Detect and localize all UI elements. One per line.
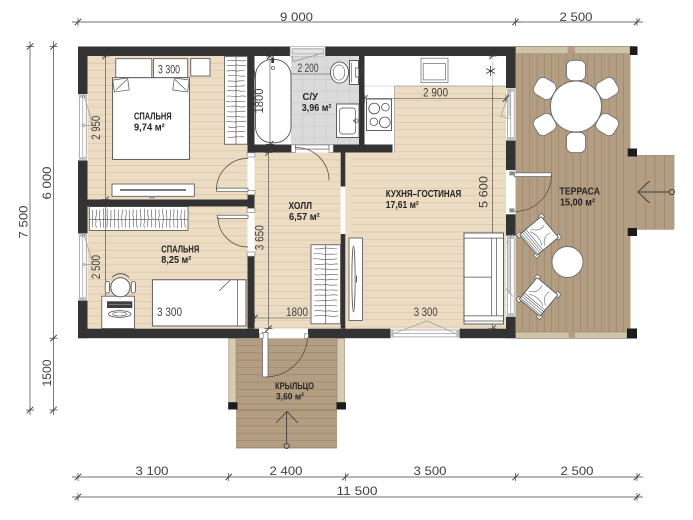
svg-text:6 000: 6 000 [40,166,54,199]
svg-text:2 400: 2 400 [270,464,303,478]
svg-text:9 000: 9 000 [280,10,313,24]
svg-text:СПАЛЬНЯ: СПАЛЬНЯ [134,112,172,123]
svg-text:5 600: 5 600 [479,176,491,208]
svg-text:КУХНЯ–ГОСТИНАЯ: КУХНЯ–ГОСТИНАЯ [386,189,461,200]
svg-text:11 500: 11 500 [337,484,378,498]
svg-text:3 500: 3 500 [414,464,447,478]
svg-text:8,25 м²: 8,25 м² [161,255,191,266]
svg-text:ТЕРРАСА: ТЕРРАСА [560,187,601,198]
svg-text:9,74 м²: 9,74 м² [134,122,165,133]
svg-text:2 200: 2 200 [298,63,319,75]
svg-text:3 300: 3 300 [414,307,438,319]
svg-text:3,60 м²: 3,60 м² [276,391,304,402]
svg-text:3 300: 3 300 [157,307,182,319]
svg-text:2 500: 2 500 [91,255,103,279]
svg-text:7 500: 7 500 [17,205,31,238]
svg-text:2 950: 2 950 [91,116,103,140]
svg-text:2 500: 2 500 [560,10,593,24]
svg-text:ХОЛЛ: ХОЛЛ [289,201,313,212]
svg-text:2 900: 2 900 [423,88,448,100]
svg-text:СПАЛЬНЯ: СПАЛЬНЯ [161,245,199,256]
svg-text:3 300: 3 300 [158,65,180,77]
svg-text:1500: 1500 [40,359,54,386]
svg-text:3 100: 3 100 [136,464,169,478]
svg-text:3,96 м²: 3,96 м² [302,103,332,114]
svg-text:6,57 м²: 6,57 м² [289,212,320,223]
svg-text:2 500: 2 500 [561,464,594,478]
svg-text:1800: 1800 [254,89,266,114]
svg-text:3 650: 3 650 [255,225,267,250]
svg-text:С/У: С/У [303,92,319,103]
svg-text:1800: 1800 [286,307,308,319]
svg-text:15,00 м²: 15,00 м² [560,197,595,208]
svg-text:17,61 м²: 17,61 м² [386,200,419,211]
